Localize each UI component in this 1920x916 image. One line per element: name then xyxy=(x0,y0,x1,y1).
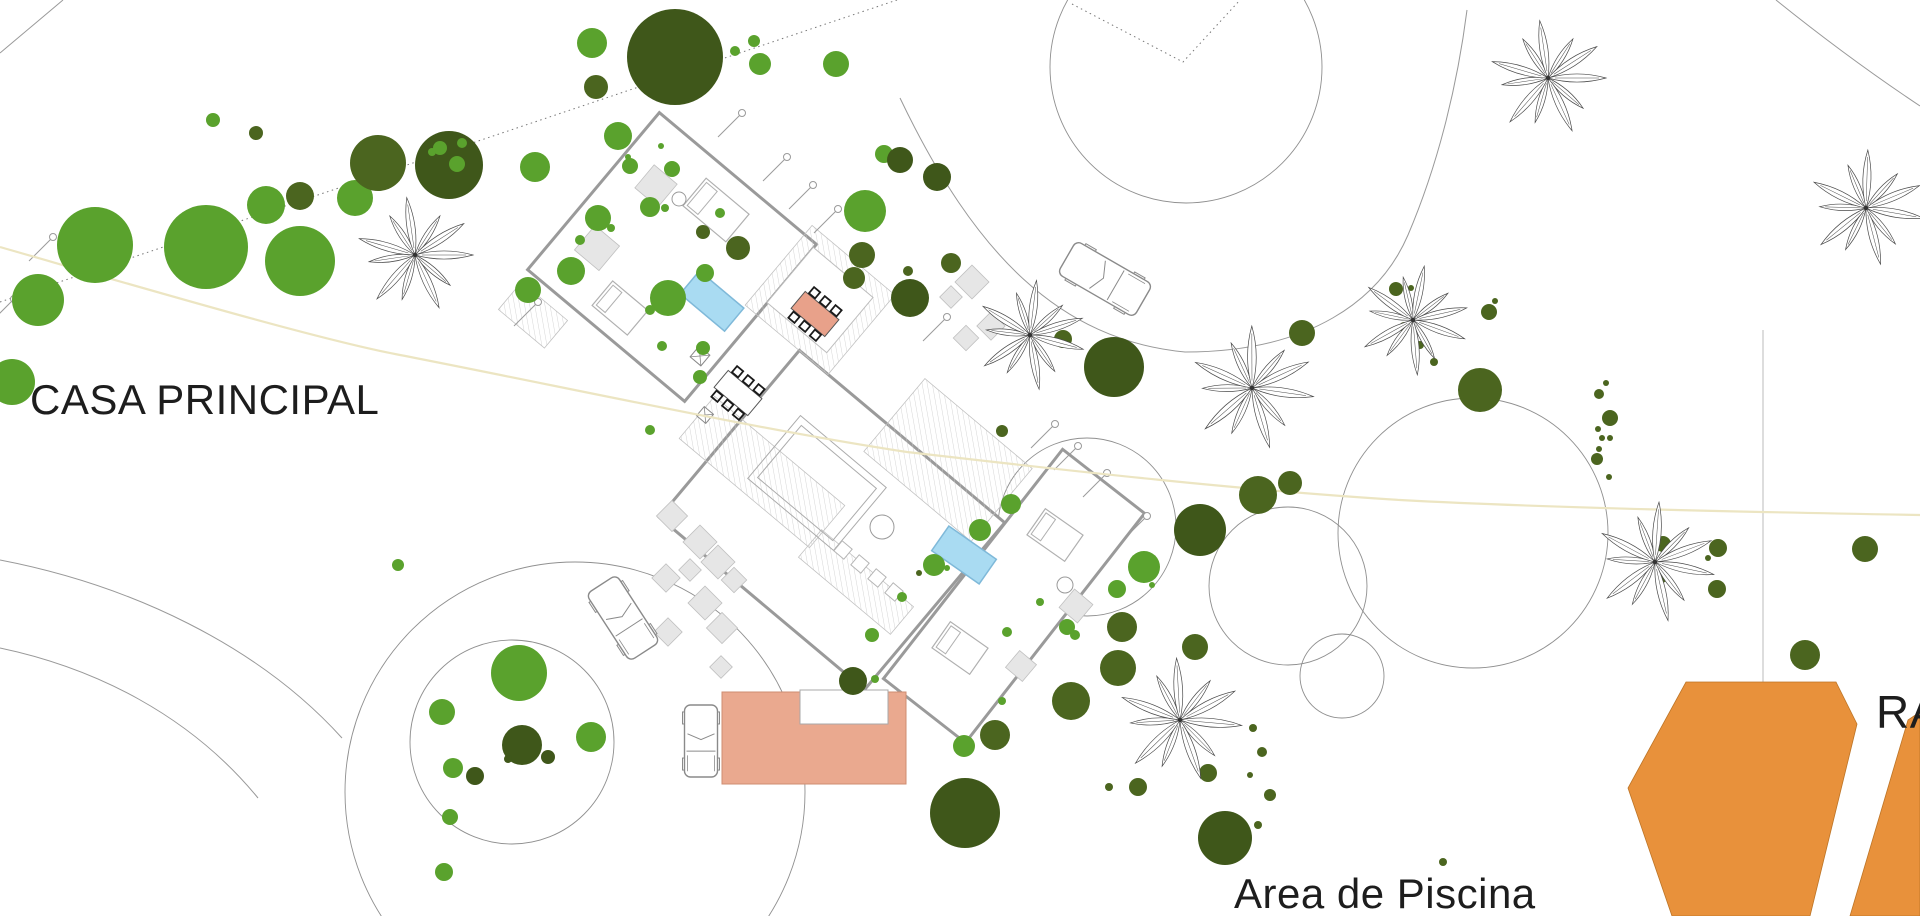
tree-circle xyxy=(1599,435,1605,441)
tree-circle xyxy=(429,699,455,725)
pin-leader-line xyxy=(814,209,838,233)
tree-circle xyxy=(1790,640,1820,670)
palm-leaf-rib xyxy=(1609,537,1649,559)
tree-circle xyxy=(645,305,655,315)
tree-circle xyxy=(1247,772,1253,778)
palm-leaf xyxy=(1605,559,1658,602)
tree-circle xyxy=(1100,650,1136,686)
tree-circle xyxy=(871,675,879,683)
tree-circle xyxy=(1149,582,1155,588)
tree-circle xyxy=(887,147,913,173)
tree-circle xyxy=(249,126,263,140)
survey-pin xyxy=(763,154,791,182)
orange-structure xyxy=(1850,712,1920,916)
site-plan-canvas: CASA PRINCIPAL Area de Piscina RA xyxy=(0,0,1920,916)
tree-circle xyxy=(577,28,607,58)
tree-circle xyxy=(457,138,467,148)
tree-circle xyxy=(650,280,686,316)
tree-canopy-circle xyxy=(1050,0,1322,203)
tree-circle xyxy=(1852,536,1878,562)
tree-circle xyxy=(1108,580,1126,598)
tree-circle xyxy=(1257,747,1267,757)
tree-circle xyxy=(1595,426,1601,432)
car-body xyxy=(586,575,660,662)
paving-stone xyxy=(710,656,733,679)
paving-stone xyxy=(955,265,989,299)
pin-circle xyxy=(50,234,57,241)
tree-circle xyxy=(1709,539,1727,557)
tree-circle xyxy=(839,667,867,695)
tree-circle xyxy=(435,863,453,881)
round-table xyxy=(672,192,686,206)
tree-circle xyxy=(1439,858,1447,866)
building-wing xyxy=(528,113,817,402)
paving-stone xyxy=(688,586,722,620)
tree-circle xyxy=(1174,504,1226,556)
pin-circle xyxy=(1144,513,1151,520)
tree-circle xyxy=(622,158,638,174)
tree-circle xyxy=(1458,368,1502,412)
tree-circle xyxy=(1129,778,1147,796)
tree-circle xyxy=(1052,682,1090,720)
tree-circle xyxy=(1594,389,1604,399)
survey-pin xyxy=(923,314,951,342)
tree-circle xyxy=(1607,435,1613,441)
tree-circle xyxy=(491,645,547,701)
palm-trees-layer xyxy=(358,20,1920,783)
tree-circle xyxy=(749,53,771,75)
tree-circle xyxy=(1591,453,1603,465)
palm-tree-icon xyxy=(1586,491,1726,629)
tree-circle xyxy=(748,35,760,47)
tree-circle xyxy=(696,264,714,282)
tree-circle xyxy=(585,205,611,231)
paving-stone xyxy=(940,286,963,309)
road-line xyxy=(0,560,342,738)
right-edge-partial-label: RA xyxy=(1876,689,1920,735)
car-body xyxy=(685,705,718,777)
tree-circle xyxy=(658,143,664,149)
pin-leader-line xyxy=(923,317,947,341)
palm-tree-icon xyxy=(1345,250,1484,387)
paving-stone xyxy=(652,564,680,592)
tree-circle xyxy=(930,778,1000,848)
survey-pin xyxy=(814,206,842,234)
pin-circle xyxy=(1052,421,1059,428)
tree-circle xyxy=(57,207,133,283)
car-icon xyxy=(683,705,720,777)
boundary-dotted-line xyxy=(1072,0,1240,62)
pin-leader-line xyxy=(0,299,14,323)
car-body xyxy=(1057,241,1152,318)
tree-canopy-circle xyxy=(1300,634,1384,718)
tree-canopy-circle xyxy=(1338,398,1608,668)
pin-circle xyxy=(784,154,791,161)
tree-circle xyxy=(730,46,740,56)
tree-circle xyxy=(969,519,991,541)
tree-circle xyxy=(504,755,512,763)
palm-center-dot xyxy=(413,253,417,257)
tree-circle xyxy=(1002,627,1012,637)
palm-center-dot xyxy=(1546,76,1550,80)
tree-circle xyxy=(715,208,725,218)
tree-circle xyxy=(843,267,865,289)
tree-circle xyxy=(953,735,975,757)
orange-structure xyxy=(1628,682,1857,916)
tree-circle xyxy=(944,565,950,571)
pin-circle xyxy=(944,314,951,321)
tree-circle xyxy=(584,75,608,99)
tree-circle xyxy=(576,722,606,752)
tree-circle xyxy=(1602,410,1618,426)
survey-pin xyxy=(789,182,817,210)
car-icon xyxy=(1056,239,1153,319)
paving-stone xyxy=(654,618,682,646)
pin-circle xyxy=(810,182,817,189)
tree-circle xyxy=(443,758,463,778)
tree-circle xyxy=(726,236,750,260)
tree-circle xyxy=(1389,282,1403,296)
tree-circle xyxy=(903,266,913,276)
tree-circle xyxy=(645,425,655,435)
tree-canopy-circle xyxy=(1209,507,1367,665)
tree-circle xyxy=(392,559,404,571)
tree-circle xyxy=(916,570,922,576)
site-plan-svg xyxy=(0,0,1920,916)
palm-tree-icon xyxy=(1801,141,1920,272)
tree-circle xyxy=(428,148,436,156)
tree-circle xyxy=(206,113,220,127)
tree-circle xyxy=(1254,821,1262,829)
tree-circle xyxy=(1084,337,1144,397)
tree-circle xyxy=(1708,580,1726,598)
buildings-layer xyxy=(0,110,1151,785)
tree-circle xyxy=(1430,358,1438,366)
tree-circle xyxy=(604,122,632,150)
tree-circle xyxy=(627,9,723,105)
tree-circle xyxy=(520,152,550,182)
palm-leaf xyxy=(1818,205,1868,248)
tree-circle xyxy=(661,204,669,212)
round-table xyxy=(870,515,894,539)
tree-circle xyxy=(996,425,1008,437)
tree-circle xyxy=(442,809,458,825)
tree-circle xyxy=(1481,304,1497,320)
tree-circle xyxy=(1128,551,1160,583)
road-line xyxy=(0,648,258,798)
tree-circle xyxy=(1596,446,1602,452)
tree-circle xyxy=(1249,724,1257,732)
tree-circle xyxy=(449,156,465,172)
service-building-notch xyxy=(800,690,888,724)
pin-circle xyxy=(835,206,842,213)
tree-circle xyxy=(1199,764,1217,782)
tree-circle xyxy=(1239,476,1277,514)
tree-circle xyxy=(693,370,707,384)
palm-leaf-rib xyxy=(1419,322,1458,336)
tree-circle xyxy=(1070,630,1080,640)
tree-circle xyxy=(844,190,886,232)
tree-circle xyxy=(657,341,667,351)
pin-leader-line xyxy=(789,185,813,209)
tree-circle xyxy=(1264,789,1276,801)
tree-circle xyxy=(1001,494,1021,514)
paving-stone xyxy=(706,612,737,643)
tree-circle xyxy=(1036,598,1044,606)
tree-circle xyxy=(998,697,1006,705)
palm-tree-icon xyxy=(358,197,473,309)
tree-circle xyxy=(696,341,710,355)
main-house-label: CASA PRINCIPAL xyxy=(30,379,379,421)
tree-circle xyxy=(1705,555,1711,561)
tree-circle xyxy=(823,51,849,77)
tree-circle xyxy=(12,274,64,326)
round-table xyxy=(1057,577,1073,593)
pool-area-label: Area de Piscina xyxy=(1234,873,1536,915)
tree-circle xyxy=(696,225,710,239)
tree-circle xyxy=(849,242,875,268)
road-line xyxy=(0,0,63,53)
palm-leaf-rib xyxy=(1129,700,1173,717)
tree-circle xyxy=(664,161,680,177)
tree-circle xyxy=(1105,783,1113,791)
pin-circle xyxy=(739,110,746,117)
tree-circle xyxy=(923,554,945,576)
tree-circle xyxy=(923,163,951,191)
tree-circle xyxy=(541,750,555,764)
pin-leader-line xyxy=(718,113,742,137)
tree-circle xyxy=(1278,471,1302,495)
tree-circle xyxy=(1289,320,1315,346)
tree-circle xyxy=(575,235,585,245)
palm-leaf xyxy=(1363,317,1415,350)
pin-leader-line xyxy=(763,157,787,181)
tree-circle xyxy=(466,767,484,785)
tree-circle xyxy=(897,592,907,602)
tree-circle xyxy=(1603,380,1609,386)
tree-circle xyxy=(941,253,961,273)
tree-circle xyxy=(265,226,335,296)
tree-circle xyxy=(1492,298,1498,304)
paving-stone xyxy=(679,559,702,582)
road-line xyxy=(1776,0,1920,106)
tree-circle xyxy=(980,720,1010,750)
pin-leader-line xyxy=(1031,424,1055,448)
tree-circle xyxy=(515,277,541,303)
tree-circle xyxy=(557,257,585,285)
car-icon xyxy=(584,574,661,663)
survey-pin xyxy=(718,110,746,138)
tree-circle xyxy=(286,182,314,210)
tree-circle xyxy=(640,197,660,217)
tree-circle xyxy=(891,279,929,317)
tree-circle xyxy=(1198,811,1252,865)
pin-circle xyxy=(1075,443,1082,450)
tree-circle xyxy=(865,628,879,642)
tree-circle xyxy=(247,186,285,224)
tree-circle xyxy=(1107,612,1137,642)
tree-circle xyxy=(1606,474,1612,480)
paving-stone xyxy=(953,325,978,350)
tree-circle xyxy=(164,205,248,289)
palm-tree-icon xyxy=(1491,20,1606,132)
tree-circle xyxy=(607,224,615,232)
tree-circle xyxy=(350,135,406,191)
tree-circle xyxy=(415,131,483,199)
tree-circle xyxy=(1182,634,1208,660)
